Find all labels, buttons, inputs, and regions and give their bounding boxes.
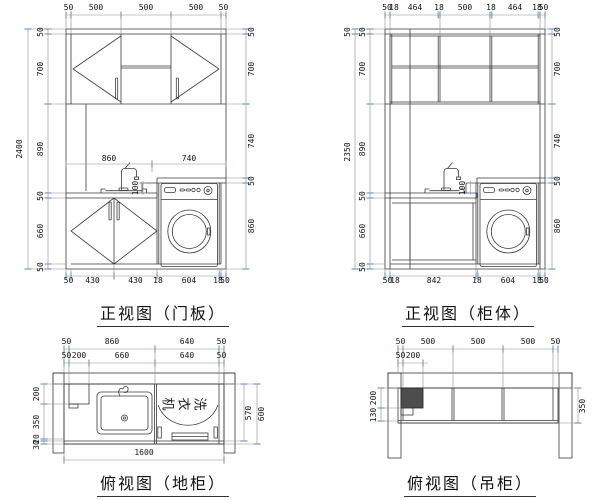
front-carcass-ticks (352, 12, 556, 280)
sink-drain (122, 415, 128, 421)
flue-duct (401, 388, 423, 408)
backsplash-step (466, 183, 477, 193)
dim-label: 50 (217, 338, 227, 346)
dim-label: 700 (359, 62, 367, 76)
dim-label: 2400 (16, 139, 24, 158)
dim-label: 464 (508, 4, 522, 12)
dim-label: 50 (539, 277, 549, 285)
dim-label: 660 (37, 224, 45, 238)
washer-label-char: 衣 (178, 397, 191, 410)
dim-label: 350 (33, 414, 41, 428)
dim-label: 660 (115, 352, 129, 360)
dim-label: 500 (471, 338, 485, 346)
dim-label: 18 (153, 277, 163, 285)
dim-label: 740 (554, 134, 562, 148)
front-carcass-dim-lines (355, 15, 552, 276)
dim-label: 200 (72, 352, 86, 360)
dim-label: 640 (180, 352, 194, 360)
plan-base-drawing (53, 373, 235, 453)
dim-label: 18 (389, 4, 399, 12)
dim-label: 50 (248, 176, 256, 186)
dim-label: 350 (579, 398, 587, 412)
dim-label: 500 (458, 4, 472, 12)
dim-label: 500 (421, 338, 435, 346)
washer-drum (168, 210, 211, 253)
dim-label: 50 (396, 338, 406, 346)
dim-label: 500 (89, 4, 103, 12)
dim-label: 50 (554, 27, 562, 37)
view-title-plan-base: 俯视图（地柜） (97, 470, 229, 497)
dim-label: 50 (248, 27, 256, 37)
front-door-dim-lines (28, 15, 246, 276)
dim-label: 860 (102, 155, 116, 163)
dim-label: 464 (408, 4, 422, 12)
wall-band (388, 373, 401, 458)
dim-label: 570 (245, 405, 253, 419)
door-handle (109, 202, 111, 220)
dim-label: 50 (37, 27, 45, 37)
dim-label: 200 (33, 387, 41, 401)
washer-label-char: 洗 (194, 397, 207, 410)
dim-label: 740 (248, 134, 256, 148)
base-door-swing-marks (71, 198, 157, 264)
dim-label: 130 (370, 407, 378, 421)
washer-knob (523, 187, 531, 195)
dim-label: 860 (248, 219, 256, 233)
dim-label: 500 (521, 338, 535, 346)
dim-label: 18 (434, 4, 444, 12)
dim-label: 50 (359, 191, 367, 201)
dim-label: 18 (472, 277, 482, 285)
view-title-plan-wall: 俯视图（吊柜） (404, 470, 536, 497)
dim-label: 500 (139, 4, 153, 12)
detergent-drawer (165, 188, 176, 193)
dim-label: 430 (85, 277, 99, 285)
cad-drawing-sheet: 50 500 500 500 50 2400 50 700 890 50 660… (0, 0, 604, 500)
dim-label: 700 (248, 62, 256, 76)
washer-drum (487, 210, 530, 253)
dim-label: 50 (359, 262, 367, 272)
dim-label: 200 (406, 352, 420, 360)
dim-label: 50 (359, 27, 367, 37)
washer-knob (204, 187, 212, 195)
front-door-ticks (25, 12, 250, 280)
dim-label: 50 (62, 338, 72, 346)
dim-label: 660 (359, 224, 367, 238)
dim-label: 600 (258, 407, 266, 421)
door-swing-marks (73, 36, 219, 102)
dim-label: 50 (539, 4, 549, 12)
dim-label: 640 (180, 338, 194, 346)
dim-label: 100 (459, 181, 467, 195)
dim-label: 50 (217, 352, 227, 360)
view-title-front-carcass: 正视图（柜体） (402, 300, 534, 327)
dim-label: 50 (396, 352, 406, 360)
dim-label: 50 (64, 277, 74, 285)
dim-label: 50 (344, 27, 352, 37)
detergent-drawer (484, 188, 495, 193)
dim-label: 50 (64, 4, 74, 12)
dim-label: 860 (554, 219, 562, 233)
dim-label: 860 (105, 338, 119, 346)
dim-label: 890 (359, 141, 367, 155)
dim-label: 740 (182, 155, 196, 163)
dim-label: 50 (554, 176, 562, 186)
faucet-plan-icon (119, 386, 128, 396)
door-handle (176, 78, 178, 99)
wall-band (388, 373, 572, 388)
dim-label: 100 (132, 181, 140, 195)
dim-label: 50 (219, 4, 229, 12)
washing-machine-front (161, 184, 218, 267)
sink-plan (97, 386, 152, 434)
dim-label: 2350 (344, 142, 352, 161)
dim-label: 50 (62, 352, 72, 360)
dim-label: 18 (486, 4, 496, 12)
dim-label: 30 (33, 440, 41, 450)
dim-label: 50 (551, 338, 561, 346)
plan-wall-dim-lines (381, 349, 578, 423)
washer-label-char: 机 (162, 397, 175, 410)
dim-label: 842 (427, 277, 441, 285)
front-door-drawing (66, 29, 226, 269)
dim-label: 50 (37, 191, 45, 201)
door-handle (117, 202, 119, 220)
plan-base-dim-lines (44, 349, 257, 460)
dim-label: 18 (390, 277, 400, 285)
dim-label: 700 (37, 62, 45, 76)
dim-label: 890 (37, 141, 45, 155)
washing-machine-front (480, 184, 537, 267)
dim-label: 1600 (134, 449, 153, 457)
wall-band (53, 373, 235, 384)
dim-label: 700 (554, 62, 562, 76)
dim-label: 500 (189, 4, 203, 12)
view-title-front-door: 正视图（门板） (97, 300, 229, 327)
dim-label: 604 (501, 277, 515, 285)
dim-label: 50 (220, 277, 230, 285)
front-carcass-drawing (385, 29, 545, 269)
dim-label: 200 (370, 391, 378, 405)
backsplash-step (142, 183, 157, 193)
dim-label: 50 (37, 262, 45, 272)
plan-wall-drawing (388, 373, 572, 458)
dim-label: 430 (128, 277, 142, 285)
dim-label: 604 (182, 277, 196, 285)
wall-band (559, 373, 572, 458)
drawing-layer (0, 0, 604, 500)
door-handle (116, 78, 118, 99)
flue-duct (69, 384, 89, 404)
